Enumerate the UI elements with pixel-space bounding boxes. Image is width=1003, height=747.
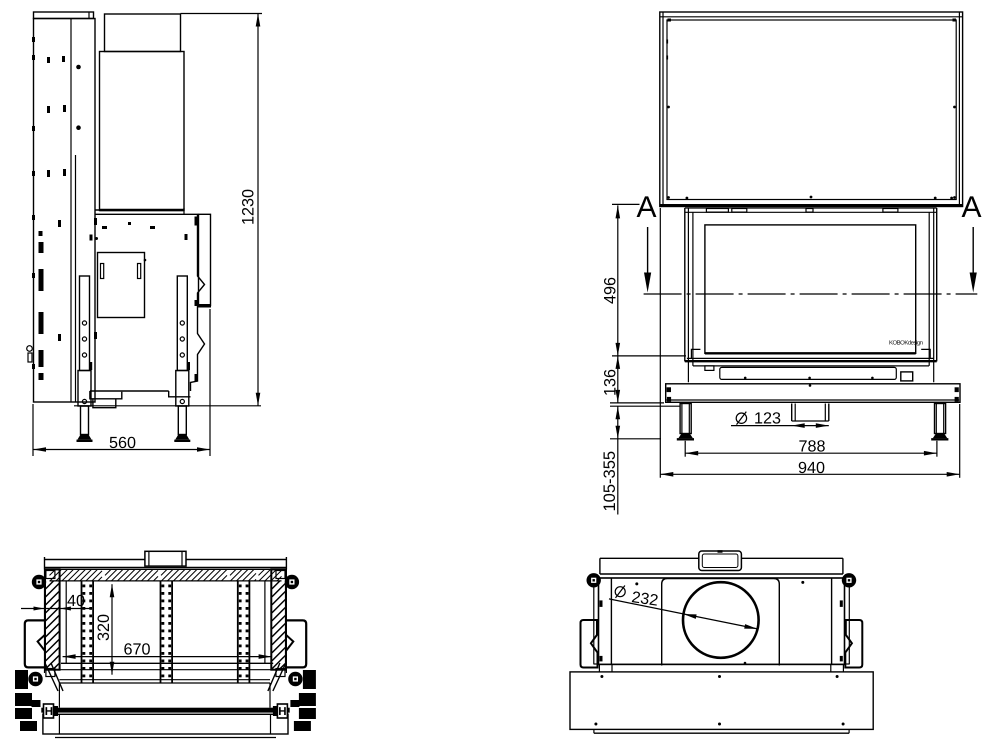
- svg-text:320: 320: [95, 614, 113, 641]
- svg-text:KOBOKdesign: KOBOKdesign: [889, 341, 923, 347]
- svg-text:123: 123: [754, 410, 781, 428]
- svg-text:A: A: [636, 191, 656, 224]
- svg-text:136: 136: [602, 369, 620, 396]
- svg-text:1230: 1230: [240, 189, 258, 225]
- svg-text:560: 560: [109, 434, 136, 452]
- svg-text:670: 670: [123, 641, 150, 659]
- svg-text:105-355: 105-355: [601, 451, 619, 512]
- svg-text:788: 788: [798, 438, 825, 456]
- svg-text:A: A: [961, 191, 981, 224]
- svg-text:40: 40: [67, 592, 85, 610]
- svg-text:H: H: [278, 706, 286, 718]
- svg-text:496: 496: [602, 277, 620, 304]
- svg-text:940: 940: [798, 459, 825, 477]
- svg-text:H: H: [45, 706, 53, 718]
